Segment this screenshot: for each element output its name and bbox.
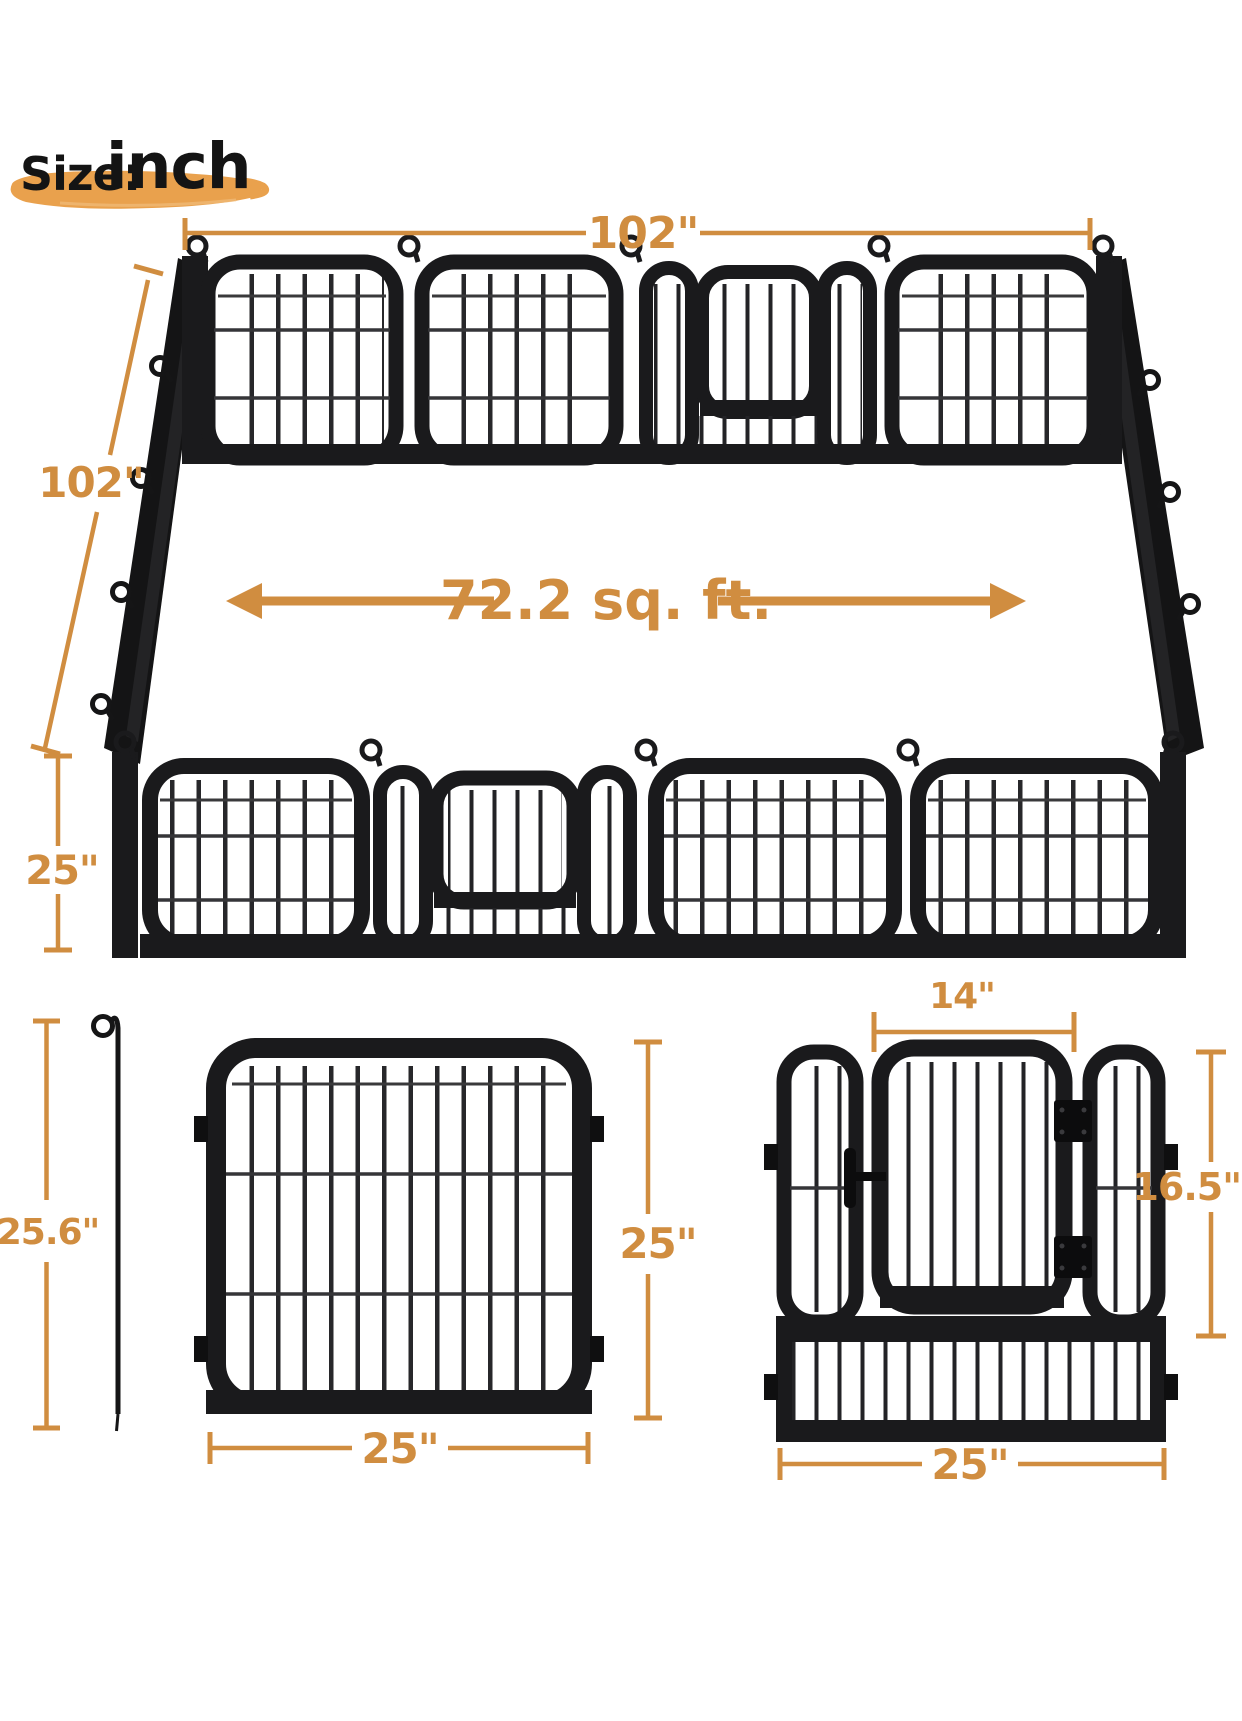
dim-door-height: 16.5" — [1132, 1052, 1241, 1336]
area-arrow-right — [990, 583, 1026, 619]
gate-panel-figure: 14" 16.5" 25" — [764, 976, 1241, 1489]
dim-panel-width: 25" — [210, 1424, 588, 1473]
dim-left-height-label: 25" — [25, 848, 99, 894]
dim-top-width: 102" — [185, 208, 1090, 259]
area-value: 72.2 sq. ft. — [440, 569, 772, 632]
dim-panel-height: 25" — [619, 1042, 696, 1418]
single-panel — [194, 1048, 604, 1414]
dim-panel-height-label: 25" — [619, 1219, 696, 1268]
dim-left-height: 25" — [25, 756, 99, 950]
dim-stake-height-label: 25.6" — [0, 1212, 99, 1253]
dim-left-depth-label: 102" — [38, 458, 144, 507]
dim-gate-width: 25" — [780, 1440, 1164, 1489]
front-wall — [112, 733, 1186, 958]
product-dimension-image: Size: inch — [0, 0, 1242, 1721]
dim-stake-height: 25.6" — [0, 1021, 99, 1428]
front-left-corner-post — [112, 752, 138, 958]
dim-door-width-label: 14" — [929, 976, 995, 1017]
single-panel-figure: 25.6" 25" 25" — [0, 1017, 697, 1474]
back-wall — [182, 237, 1122, 464]
title-unit-label: inch — [106, 130, 251, 203]
dim-door-height-label: 16.5" — [1132, 1165, 1241, 1209]
title-block: Size: inch — [11, 130, 266, 209]
dim-gate-width-label: 25" — [931, 1440, 1008, 1489]
playpen-3d-view: 102" 102" 25" 72.2 sq. ft. — [25, 208, 1204, 958]
area-label: 72.2 sq. ft. — [226, 569, 1026, 632]
dim-panel-width-label: 25" — [361, 1424, 438, 1473]
area-arrow-left — [226, 583, 262, 619]
dim-top-width-label: 102" — [588, 208, 699, 259]
